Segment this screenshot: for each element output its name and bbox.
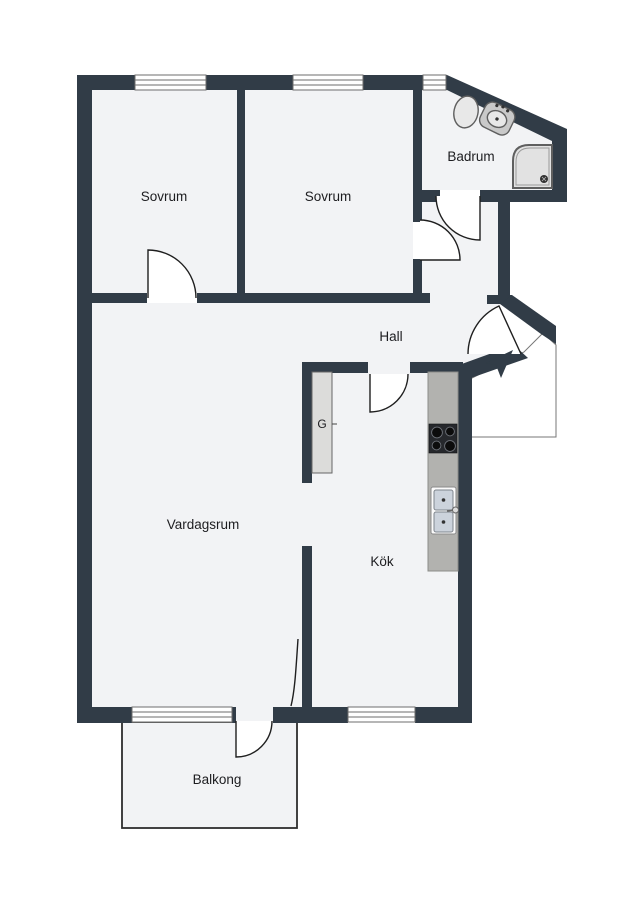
wall-bathroom-bottom-right (480, 190, 567, 202)
wall-hall-right (498, 202, 510, 295)
window (132, 707, 232, 722)
shower (513, 145, 552, 188)
room-label-kok: Kök (370, 554, 394, 569)
kitchen-counter (428, 372, 458, 571)
room-label-hall: Hall (379, 329, 402, 344)
room-label-sovrum-2: Sovrum (305, 189, 352, 204)
window (293, 75, 363, 90)
room-label-badrum: Badrum (447, 149, 494, 164)
wall-kitchen-top-right (410, 362, 463, 373)
room-label-balkong: Balkong (193, 772, 242, 787)
wall-bottom-1 (77, 707, 132, 723)
room-label-sovrum-1: Sovrum (141, 189, 188, 204)
floor-vardagsrum (92, 303, 302, 707)
wall-bottom-3 (273, 707, 348, 723)
floor-balcony-doorway (236, 707, 273, 723)
kitchen-sink (431, 487, 459, 534)
wall-bottom-4 (415, 707, 472, 723)
wall-bedrooms-bottom-right (197, 293, 430, 303)
wall-kitchen-living-divider (302, 546, 312, 723)
floorplan-page: Sovrum Sovrum Badrum Hall Vardagsrum Kök… (0, 0, 636, 900)
wall-bedroom-divider (237, 90, 245, 303)
wall-closet (302, 362, 312, 483)
window (135, 75, 206, 90)
wall-top (77, 75, 447, 90)
room-label-vardagsrum: Vardagsrum (167, 517, 240, 532)
floor-passage-strip (302, 483, 312, 546)
room-label-garderob: G (317, 417, 326, 431)
wall-left (77, 75, 92, 723)
floorplan-drawing: Sovrum Sovrum Badrum Hall Vardagsrum Kök… (0, 0, 636, 900)
wall-bottom-2 (232, 707, 236, 723)
wall-sovrum2-right-upper (413, 90, 422, 222)
stove (429, 424, 457, 453)
wall-kitchen-right (458, 366, 472, 722)
wall-bedrooms-bottom-left (92, 293, 147, 303)
window (348, 707, 415, 722)
window (423, 75, 446, 90)
